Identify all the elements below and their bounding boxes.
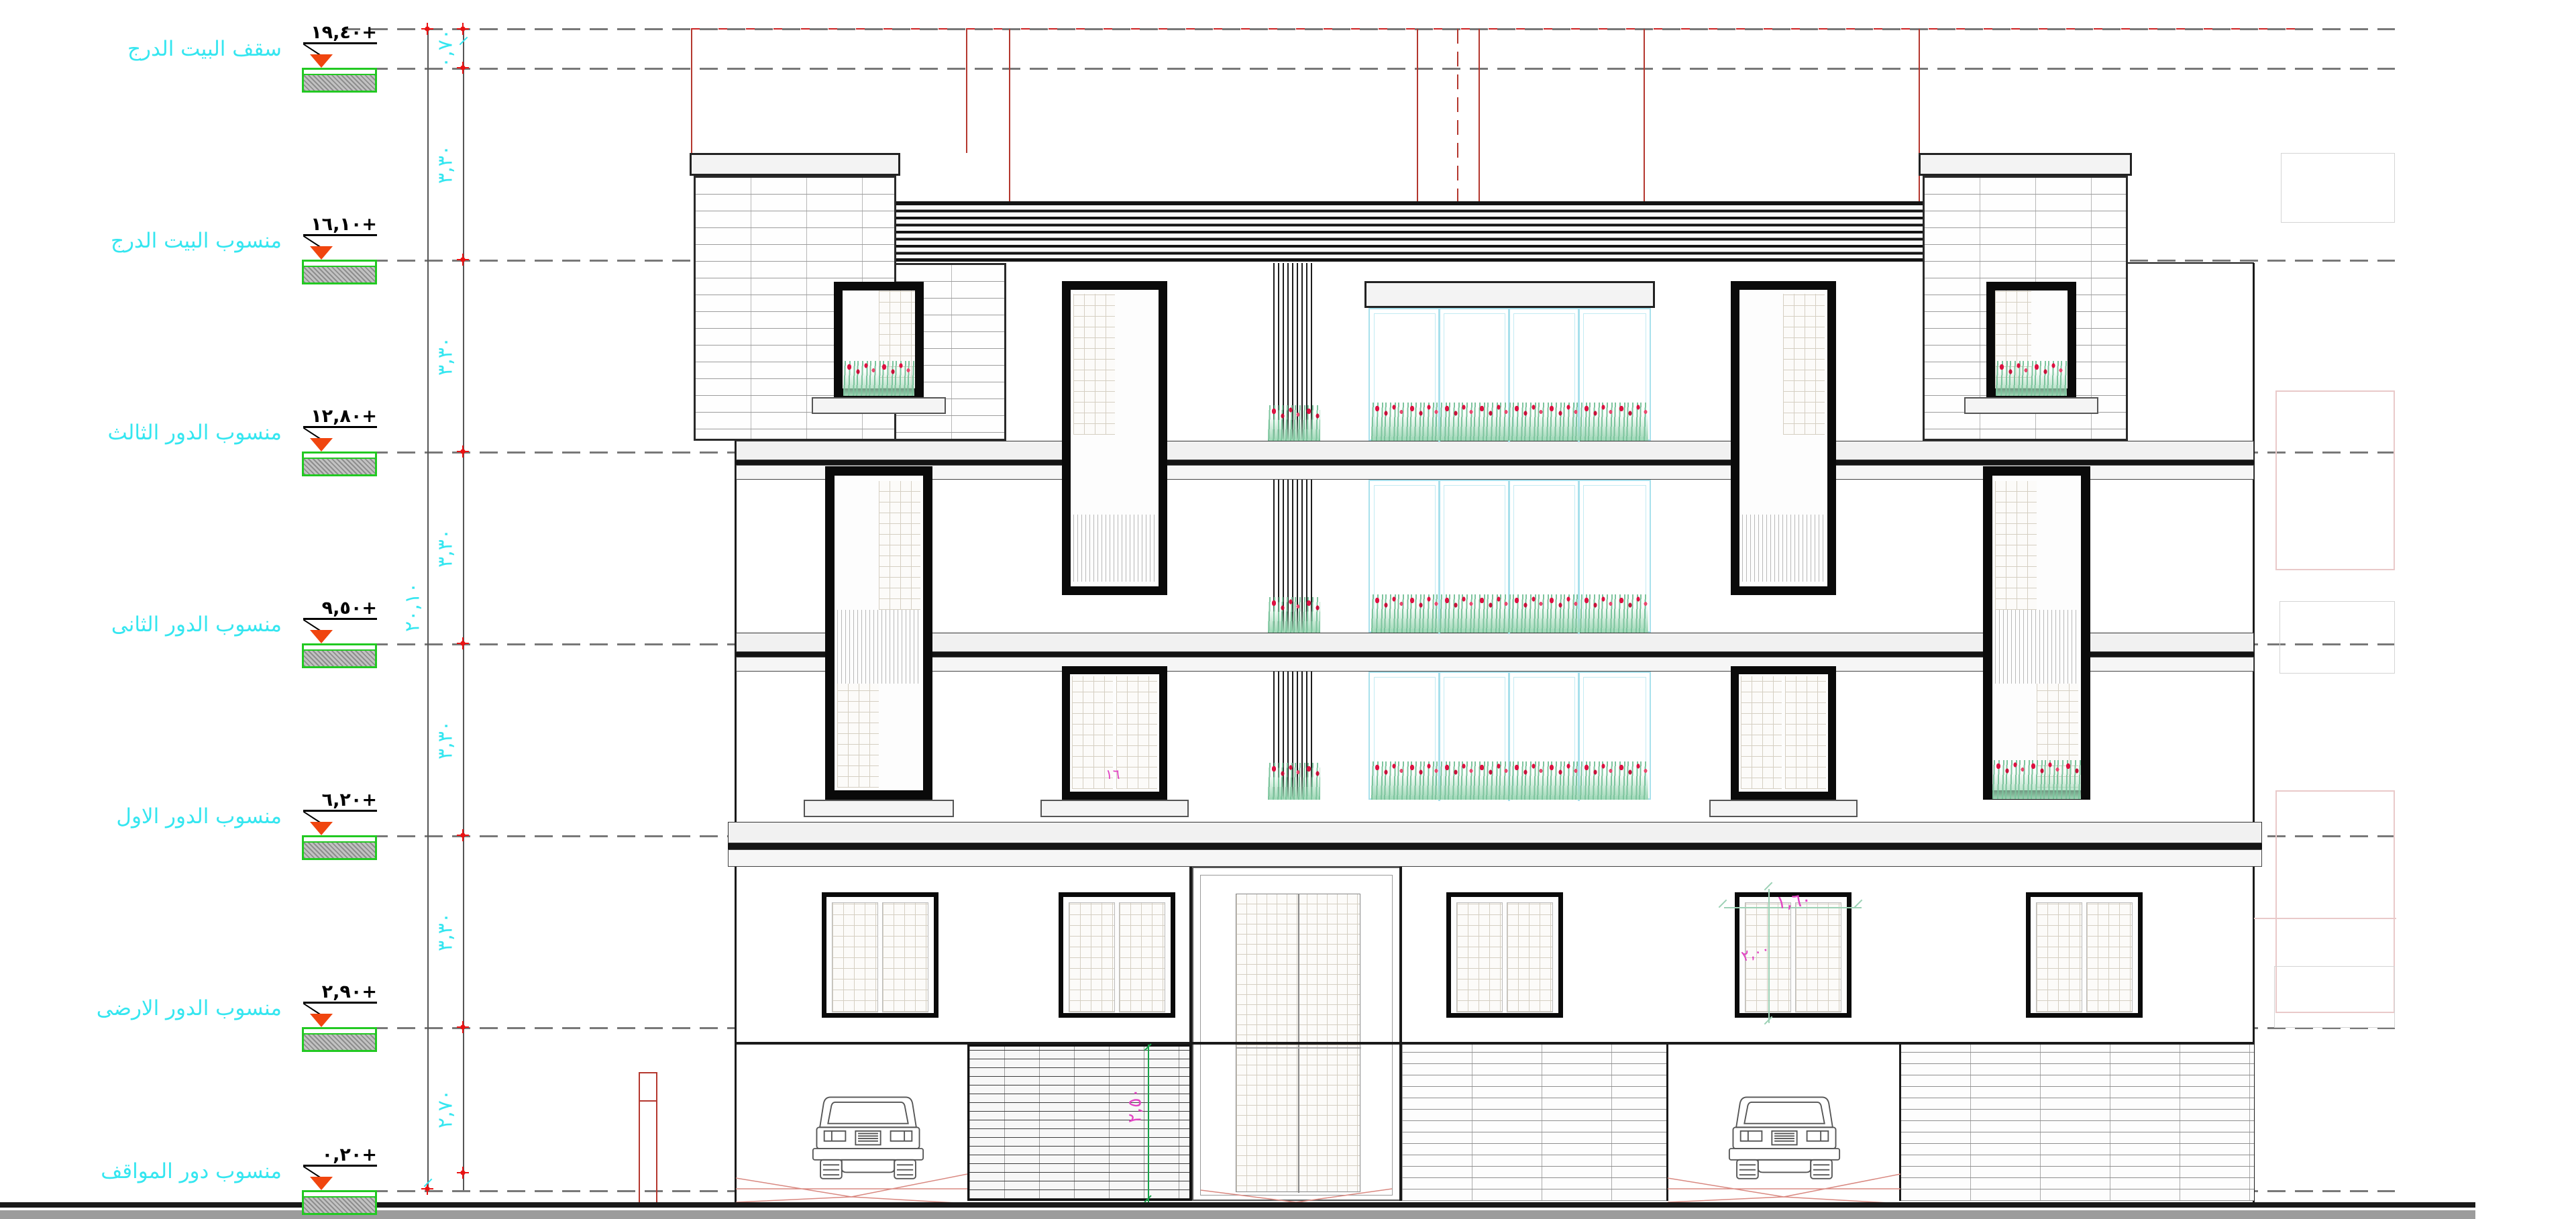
floor-note: ١٦	[1106, 766, 1120, 782]
width-note: ١,٦٠	[1776, 889, 1813, 913]
red-pole-top	[639, 1072, 657, 1073]
mashrabiya-panel	[1507, 902, 1553, 1012]
marker-hatch-box	[302, 452, 377, 476]
elevation-value: ٢,٩٠+	[288, 982, 377, 1002]
elevation-value: ١٩,٤٠+	[288, 22, 377, 43]
dim-label: ٣,٣٠	[434, 529, 458, 568]
dim-node-icon	[421, 23, 433, 35]
garage-door	[967, 1045, 1191, 1201]
level-label: سقف البيت الدرج	[0, 37, 282, 61]
planter-flowers	[1268, 405, 1320, 441]
elevation-value: ٦,٢٠+	[288, 790, 377, 810]
dim-node-icon	[421, 1183, 433, 1195]
mashrabiya-panel	[832, 902, 878, 1012]
planter-flowers	[1996, 361, 2067, 396]
dim-node-icon	[457, 62, 469, 74]
mashrabiya-panel	[879, 481, 920, 610]
planter-flowers	[1371, 403, 1648, 441]
planter-flowers	[1268, 597, 1320, 633]
right-wing-wall	[2128, 263, 2254, 441]
tall-window	[1983, 466, 2090, 800]
stripe-panel	[1073, 515, 1156, 582]
red-pole-mid	[639, 1100, 657, 1102]
dim-label: ٣,٣٠	[434, 337, 458, 376]
planter-flowers	[1371, 761, 1648, 800]
marker-triangle-icon	[310, 54, 333, 68]
masonry-wall	[1900, 1045, 2254, 1201]
window	[1731, 666, 1836, 800]
level-dashed-line	[342, 68, 2395, 70]
mashrabiya-panel	[1456, 902, 1503, 1012]
marker-triangle-icon	[310, 246, 333, 260]
planter-flowers	[1268, 763, 1320, 800]
level-label: منسوب الدور الثانى	[0, 613, 282, 637]
marker-line	[303, 1002, 377, 1004]
elevation-value: ١٢,٨٠+	[288, 406, 377, 427]
context-outline	[2279, 601, 2395, 674]
slab-band	[728, 849, 2262, 867]
right-wing-top-edge	[2128, 262, 2254, 264]
mashrabiya-panel	[1785, 676, 1826, 789]
marker-triangle-icon	[310, 438, 333, 452]
dim-node-icon	[457, 829, 469, 841]
dim-label: ٣,٣٠	[434, 912, 458, 951]
marker-line	[303, 1165, 377, 1167]
marker-hatch-box	[302, 1190, 377, 1215]
planter-flowers	[843, 361, 914, 396]
overall-dimension-line	[427, 29, 429, 1190]
marker-triangle-icon	[310, 1014, 333, 1027]
overall-dim-label: ٢٠,١٠	[401, 582, 425, 632]
left-tower-cap	[690, 153, 900, 176]
red-pole	[639, 1072, 640, 1202]
tall-window	[1062, 281, 1167, 595]
marker-hatch-box	[302, 643, 377, 668]
stall-x-mark	[1668, 1169, 1900, 1206]
red-guide-line	[691, 29, 692, 153]
stripe-panel	[1995, 610, 2078, 684]
window	[1446, 892, 1563, 1018]
planter-flowers	[1992, 760, 2081, 799]
right-tower-cap	[1919, 153, 2132, 176]
window-sill	[812, 397, 946, 414]
door-mid-rail	[1236, 1047, 1361, 1049]
context-outline	[2281, 153, 2395, 223]
mashrabiya-panel	[1116, 676, 1157, 789]
mashrabiya-panel	[1995, 481, 2037, 610]
mashrabiya-panel	[1073, 294, 1115, 435]
level-label: منسوب الدور الارضى	[0, 996, 282, 1020]
level-label: منسوب الدور الثالث	[0, 421, 282, 445]
marker-line	[303, 234, 377, 236]
elevation-drawing: سقف البيت الدرج ١٩,٤٠+ منسوب البيت الدرج…	[0, 0, 2576, 1219]
red-dashed-overlay	[691, 28, 2301, 30]
louver-band	[896, 201, 1923, 262]
elevation-value: ١٦,١٠+	[288, 214, 377, 235]
marker-triangle-icon	[310, 822, 333, 835]
window	[2026, 892, 2143, 1018]
mashrabiya-panel	[1741, 676, 1782, 789]
dim-node-icon	[457, 1021, 469, 1033]
window-sill	[1709, 800, 1858, 817]
marker-triangle-icon	[310, 1177, 333, 1190]
elevation-value: ٠,٢٠+	[288, 1145, 377, 1165]
stall-x-mark	[736, 1169, 967, 1206]
context-outline	[2274, 966, 2395, 1028]
window	[822, 892, 938, 1018]
mashrabiya-panel	[2036, 902, 2082, 1012]
mashrabiya-panel	[1119, 902, 1165, 1012]
marker-hatch-box	[302, 1027, 377, 1052]
door-dim-line	[1148, 1045, 1149, 1202]
floor-band-line	[736, 460, 2254, 465]
window	[1059, 892, 1175, 1018]
marker-line	[303, 618, 377, 620]
dim-label: ٢,٧٠	[434, 1090, 458, 1128]
context-outline	[2275, 390, 2395, 570]
mashrabiya-panel	[1069, 902, 1115, 1012]
dim-node-icon	[457, 637, 469, 649]
door-height-note: ٢,٥٠	[1125, 1088, 1146, 1123]
level-label: منسوب البيت الدرج	[0, 229, 282, 253]
marker-hatch-box	[302, 68, 377, 93]
dim-label: ٠,٧٠	[434, 29, 458, 68]
marker-triangle-icon	[310, 630, 333, 643]
mashrabiya-panel	[1795, 902, 1841, 1012]
marker-line	[303, 42, 377, 44]
stripe-panel	[1742, 515, 1825, 582]
floor-band	[736, 441, 2254, 460]
marker-hatch-box	[302, 260, 377, 284]
level-label: منسوب الدور الاول	[0, 804, 282, 829]
dim-node-icon	[457, 23, 469, 35]
entrance-portal	[1192, 867, 1401, 1201]
dim-node-icon	[457, 445, 469, 458]
window-sill	[1040, 800, 1189, 817]
elevation-value: ٩,٥٠+	[288, 598, 377, 619]
marker-line	[303, 810, 377, 812]
red-pole	[656, 1072, 657, 1202]
dim-node-icon	[457, 1167, 469, 1179]
planter-flowers	[1371, 594, 1648, 633]
stripe-panel	[837, 610, 920, 684]
marker-line	[303, 426, 377, 428]
segment-dimension-line	[463, 29, 464, 1190]
dim-node-icon	[457, 254, 469, 266]
bay-cap	[1364, 281, 1655, 308]
mashrabiya-panel	[882, 902, 928, 1012]
dim-label: ٣,٣٠	[434, 721, 458, 759]
tall-window	[825, 466, 932, 800]
red-guide-line	[966, 29, 967, 153]
mashrabiya-panel	[1783, 294, 1825, 435]
mashrabiya-panel	[2086, 902, 2133, 1012]
marker-hatch-box	[302, 835, 377, 860]
context-line	[2254, 918, 2396, 919]
slab-band	[728, 822, 2262, 843]
tall-window	[1731, 281, 1836, 595]
window-sill	[1964, 397, 2098, 414]
level-label: منسوب دور المواقف	[0, 1159, 282, 1183]
dim-label: ٣,٣٠	[434, 145, 458, 184]
window-sill	[804, 800, 954, 817]
mashrabiya-panel	[837, 684, 879, 788]
masonry-wall	[1402, 1045, 1668, 1201]
slab-band-line	[728, 843, 2262, 849]
